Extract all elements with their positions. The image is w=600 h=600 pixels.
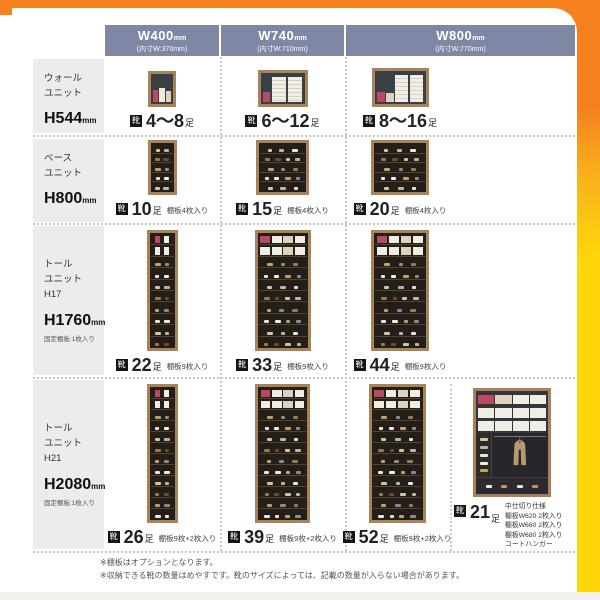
- art-shape: [375, 314, 425, 325]
- capacity-row: 靴 4〜8 足: [130, 112, 194, 130]
- art-shape: [294, 438, 298, 441]
- art-shape: [285, 343, 291, 346]
- art-shape: [401, 471, 405, 474]
- art-shape: [260, 182, 305, 191]
- row-label-wall-unit: ウォール ユニット H544mm: [33, 59, 104, 133]
- art-shape: [155, 158, 160, 161]
- art-shape: [264, 515, 270, 518]
- art-shape: [259, 476, 306, 487]
- unit-name-line: ユニット: [44, 87, 104, 102]
- art-shape: [155, 460, 159, 463]
- art-shape: [260, 144, 305, 154]
- capacity-row: 靴 33 足 棚板9枚入り: [236, 356, 329, 374]
- cell-tall17-w740: 靴 33 足 棚板9枚入り: [222, 230, 343, 374]
- art-shape: [164, 343, 169, 346]
- art-shape: [478, 408, 494, 418]
- art-shape: [164, 493, 169, 496]
- art-shape: [480, 438, 488, 441]
- art-shape: [281, 168, 285, 171]
- art-shape: [283, 247, 293, 255]
- frame-bottom-stripe: [0, 592, 600, 600]
- shoe-count-unit: 足: [391, 204, 400, 217]
- shoe-count: 26: [124, 528, 144, 546]
- locker-spec-notes: 中仕切り仕様 棚板W620 2枚入り 棚板W660 2枚入り 棚板W680 2枚…: [505, 502, 562, 550]
- art-shape: [373, 388, 422, 399]
- art-shape: [410, 149, 416, 152]
- art-shape: [396, 482, 400, 485]
- art-shape: [151, 476, 174, 487]
- art-shape: [391, 177, 396, 180]
- header-width-unit: mm: [174, 35, 186, 42]
- art-shape: [280, 187, 286, 190]
- art-shape: [264, 449, 270, 452]
- art-shape: [375, 182, 425, 191]
- art-shape: [155, 504, 160, 507]
- art-shape: [274, 275, 279, 278]
- art-shape: [165, 168, 169, 171]
- art-shape: [151, 337, 174, 347]
- art-shape: [259, 487, 306, 498]
- art-shape: [165, 482, 169, 485]
- row-label-base-unit: ベース ユニット H800mm: [33, 139, 104, 222]
- art-shape: [373, 476, 422, 487]
- art-shape: [391, 343, 396, 346]
- art-shape: [164, 460, 169, 463]
- art-shape: [264, 297, 270, 300]
- art-shape: [517, 485, 523, 488]
- art-shape: [155, 449, 161, 452]
- shoe-count-unit: 足: [391, 360, 400, 373]
- unit-name-line: トール: [44, 258, 104, 273]
- art-shape: [152, 144, 173, 154]
- height-unit: mm: [91, 318, 105, 327]
- art-shape: [283, 236, 293, 244]
- shoe-badge: 靴: [245, 115, 257, 127]
- art-shape: [283, 390, 292, 397]
- art-shape: [264, 275, 268, 278]
- art-shape: [151, 432, 174, 443]
- coat-icon: [503, 437, 537, 468]
- cell-tall21-w740: 靴 39 足 棚板9枚+2枚入り: [222, 384, 343, 546]
- shoe-count: 44: [370, 356, 390, 374]
- cabinet-illustration: [148, 140, 177, 195]
- row-divider: [33, 551, 575, 553]
- art-shape: [260, 173, 305, 183]
- art-shape: [381, 460, 385, 463]
- art-shape: [381, 275, 385, 278]
- art-shape: [384, 149, 388, 152]
- unit-name-line: H21: [44, 452, 104, 467]
- shoe-count: 15: [252, 200, 272, 218]
- art-shape: [286, 320, 290, 323]
- art-shape: [413, 236, 423, 244]
- art-shape: [259, 432, 306, 443]
- art-shape: [260, 247, 270, 255]
- art-shape: [495, 408, 511, 418]
- unit-name: トール ユニット H17: [44, 258, 104, 302]
- footnote-shelf-option: ※棚板はオプションとなります。: [100, 557, 218, 568]
- art-shape: [259, 410, 306, 421]
- art-shape: [480, 462, 488, 465]
- art-shape: [495, 395, 511, 405]
- art-shape: [259, 509, 306, 519]
- art-shape: [151, 234, 174, 245]
- unit-name-line: ベース: [44, 152, 104, 167]
- art-shape: [164, 438, 170, 441]
- art-shape: [375, 325, 425, 336]
- art-shape: [399, 449, 404, 452]
- art-shape: [267, 263, 273, 266]
- art-shape: [285, 297, 290, 300]
- art-shape: [151, 509, 174, 519]
- art-shape: [263, 92, 270, 102]
- art-shape: [280, 286, 286, 289]
- shoe-count-unit: 足: [491, 512, 500, 525]
- art-shape: [375, 154, 425, 164]
- art-shape: [513, 408, 529, 418]
- art-shape: [296, 471, 301, 474]
- shoe-badge: 靴: [354, 203, 366, 215]
- capacity-row: 靴 8〜16 足: [363, 112, 437, 130]
- shoe-count-unit: 足: [311, 116, 320, 129]
- art-shape: [373, 432, 422, 443]
- art-shape: [398, 390, 408, 397]
- art-shape: [397, 309, 402, 312]
- art-shape: [295, 247, 305, 255]
- art-shape: [259, 443, 306, 454]
- art-shape: [260, 154, 305, 164]
- cabinet-illustration: [255, 384, 310, 523]
- art-shape: [378, 449, 384, 452]
- art-shape: [381, 343, 385, 346]
- art-shape: [530, 408, 546, 418]
- shelf-note: 棚板9枚入り: [405, 361, 447, 372]
- art-shape: [375, 291, 425, 302]
- header-w740: W740mm (内寸W:710mm): [221, 25, 344, 56]
- art-shape: [407, 460, 413, 463]
- art-shape: [398, 286, 404, 289]
- art-shape: [285, 449, 290, 452]
- art-shape: [259, 325, 307, 336]
- shoe-count-unit: 足: [185, 116, 194, 129]
- art-shape: [151, 465, 174, 476]
- art-shape: [285, 515, 290, 518]
- row-label-tall-unit-h17: トール ユニット H17 H1760mm 固定棚板:1枚入り: [33, 226, 104, 375]
- height-unit: mm: [91, 482, 105, 491]
- art-shape: [375, 144, 425, 154]
- art-shape: [394, 460, 399, 463]
- art-shape: [480, 446, 488, 449]
- art-shape: [274, 177, 279, 180]
- shoe-count: 21: [470, 503, 490, 521]
- art-shape: [410, 390, 420, 397]
- art-shape: [402, 297, 407, 300]
- art-shape: [409, 504, 413, 507]
- art-shape: [408, 482, 413, 485]
- fixed-shelf-note: 固定棚板:1枚入り: [44, 497, 104, 507]
- art-shape: [259, 234, 307, 245]
- art-shape: [280, 504, 286, 507]
- art-shape: [476, 477, 548, 494]
- art-shape: [164, 427, 169, 430]
- height-value: H2080: [44, 476, 91, 493]
- art-shape: [151, 280, 174, 291]
- cabinet-illustration: [371, 230, 429, 351]
- capacity-row: 靴 44 足 棚板9枚入り: [354, 356, 447, 374]
- cell-tall21-locker: 靴 21 足 中仕切り仕様 棚板W620 2枚入り 棚板W660 2枚入り 棚板…: [454, 384, 570, 550]
- capacity-row: 靴 21 足 中仕切り仕様 棚板W620 2枚入り 棚板W660 2枚入り 棚板…: [454, 502, 570, 550]
- art-shape: [400, 493, 406, 496]
- art-shape: [260, 163, 305, 173]
- shoe-count: 39: [244, 528, 264, 546]
- capacity-row: 靴 10 足 棚板4枚入り: [116, 200, 209, 218]
- art-shape: [373, 487, 422, 498]
- art-shape: [151, 302, 174, 313]
- art-shape: [164, 236, 169, 244]
- art-shape: [492, 433, 548, 477]
- art-shape: [384, 263, 390, 266]
- art-shape: [384, 286, 389, 289]
- art-shape: [404, 158, 408, 161]
- art-shape: [296, 177, 300, 180]
- art-shape: [413, 297, 419, 300]
- art-shape: [275, 320, 281, 323]
- art-shape: [381, 438, 386, 441]
- header-width: W740: [258, 28, 294, 43]
- art-shape: [274, 493, 279, 496]
- art-shape: [381, 297, 387, 300]
- locker-spec-line: コートハンガー: [505, 540, 562, 550]
- art-shape: [292, 149, 298, 152]
- art-shape: [292, 460, 298, 463]
- art-shape: [389, 247, 399, 255]
- art-shape: [403, 343, 409, 346]
- height-value: H544: [44, 110, 82, 127]
- art-shape: [375, 173, 425, 183]
- art-shape: [295, 236, 305, 244]
- art-shape: [259, 245, 307, 256]
- cabinet-illustration: [255, 230, 311, 351]
- header-w800: W800mm (内寸W:770mm): [346, 25, 575, 56]
- cabinet-illustration: [371, 140, 429, 195]
- shoe-badge: 靴: [236, 203, 248, 215]
- shoe-badge: 靴: [116, 203, 128, 215]
- art-shape: [476, 391, 548, 433]
- art-shape: [381, 158, 386, 161]
- art-shape: [377, 236, 387, 244]
- shoe-count-unit: 足: [265, 532, 274, 545]
- art-shape: [259, 399, 306, 410]
- art-shape: [390, 515, 394, 518]
- art-shape: [151, 443, 174, 454]
- art-shape: [265, 493, 269, 496]
- art-shape: [165, 332, 169, 335]
- art-shape: [384, 309, 388, 312]
- art-shape: [164, 286, 170, 289]
- shoe-count-unit: 足: [153, 360, 162, 373]
- capacity-row: 靴 39 足 棚板9枚+2枚入り: [228, 528, 337, 546]
- art-shape: [280, 438, 286, 441]
- art-shape: [274, 427, 279, 430]
- art-shape: [259, 280, 307, 291]
- art-shape: [286, 471, 290, 474]
- art-shape: [395, 504, 401, 507]
- shoe-count-unit: 足: [153, 204, 162, 217]
- unit-height: H544mm: [44, 110, 104, 128]
- art-shape: [267, 460, 271, 463]
- art-shape: [404, 320, 408, 323]
- art-shape: [155, 263, 161, 266]
- cell-tall17-w800: 靴 44 足 棚板9枚入り: [347, 230, 453, 374]
- art-shape: [378, 471, 383, 474]
- art-shape: [155, 515, 161, 518]
- art-shape: [375, 280, 425, 291]
- art-shape: [374, 401, 384, 408]
- art-shape: [477, 419, 547, 432]
- art-shape: [410, 449, 416, 452]
- art-shape: [155, 390, 160, 397]
- art-shape: [261, 390, 270, 397]
- shelf-note: 棚板4枚入り: [405, 205, 447, 216]
- art-shape: [151, 257, 174, 268]
- art-shape: [375, 257, 425, 268]
- art-shape: [381, 177, 385, 180]
- art-shape: [268, 149, 272, 152]
- shelf-note: 棚板4枚入り: [287, 205, 329, 216]
- art-shape: [414, 320, 419, 323]
- cell-tall17-w400: 靴 22 足 棚板9枚入り: [106, 230, 218, 374]
- art-shape: [295, 449, 301, 452]
- header-inner-width: (内寸W:710mm): [257, 46, 307, 54]
- art-shape: [267, 309, 271, 312]
- art-shape: [373, 410, 422, 421]
- capacity-row: 靴 26 足 棚板9枚+2枚入り: [108, 528, 217, 546]
- art-shape: [260, 236, 270, 244]
- shoe-count-unit: 足: [145, 532, 154, 545]
- unit-height: H800mm: [44, 190, 104, 208]
- shoe-count: 8〜16: [379, 112, 427, 130]
- art-shape: [288, 77, 302, 102]
- art-shape: [403, 177, 409, 180]
- art-shape: [155, 438, 160, 441]
- art-shape: [381, 320, 386, 323]
- art-shape: [381, 416, 387, 419]
- art-shape: [164, 247, 169, 255]
- art-shape: [295, 158, 300, 161]
- art-shape: [389, 236, 399, 244]
- art-shape: [530, 395, 546, 405]
- art-shape: [413, 247, 423, 255]
- art-shape: [379, 493, 383, 496]
- art-shape: [281, 263, 285, 266]
- capacity-row: 靴 20 足 棚板4枚入り: [354, 200, 447, 218]
- unit-name-line: ユニット: [44, 273, 104, 288]
- header-width-unit: mm: [472, 35, 484, 42]
- art-shape: [293, 263, 298, 266]
- art-shape: [155, 416, 161, 419]
- art-shape: [410, 401, 420, 408]
- art-shape: [274, 343, 279, 346]
- art-shape: [297, 275, 301, 278]
- header-width-line: W800mm: [436, 27, 484, 45]
- art-shape: [477, 405, 547, 418]
- art-shape: [166, 91, 172, 102]
- unit-name: ウォール ユニット: [44, 72, 104, 101]
- art-shape: [395, 75, 408, 102]
- art-shape: [374, 390, 384, 397]
- art-shape: [393, 297, 397, 300]
- art-shape: [392, 320, 398, 323]
- shoe-badge: 靴: [354, 359, 366, 371]
- art-shape: [375, 302, 425, 313]
- art-shape: [151, 487, 174, 498]
- capacity-row: 靴 52 足 棚板9枚+2枚入り: [343, 528, 452, 546]
- art-shape: [378, 515, 384, 518]
- art-shape: [390, 449, 394, 452]
- art-shape: [259, 498, 306, 509]
- art-shape: [513, 421, 529, 431]
- art-shape: [151, 268, 174, 279]
- art-shape: [513, 395, 529, 405]
- art-shape: [412, 427, 416, 430]
- art-shape: [411, 471, 416, 474]
- art-shape: [295, 390, 304, 397]
- art-shape: [410, 75, 423, 102]
- art-shape: [155, 275, 159, 278]
- cabinet-illustration: [147, 230, 178, 351]
- shoe-count: 33: [252, 356, 272, 374]
- art-shape: [401, 236, 411, 244]
- art-shape: [495, 421, 511, 431]
- spec-sheet: W400mm (内寸W:370mm) W740mm (内寸W:710mm) W8…: [0, 0, 600, 600]
- art-shape: [155, 332, 161, 335]
- cabinet-illustration: [372, 68, 429, 107]
- art-shape: [163, 158, 169, 161]
- art-shape: [530, 421, 546, 431]
- art-shape: [286, 158, 290, 161]
- art-shape: [151, 325, 174, 336]
- art-shape: [151, 498, 174, 509]
- art-shape: [285, 177, 291, 180]
- art-shape: [155, 482, 161, 485]
- shelf-note: 棚板9枚+2枚入り: [159, 533, 217, 544]
- art-shape: [410, 515, 416, 518]
- art-shape: [259, 465, 306, 476]
- header-width-line: W400mm: [138, 27, 186, 45]
- shoe-count: 20: [370, 200, 390, 218]
- art-shape: [259, 291, 307, 302]
- art-shape: [156, 149, 160, 152]
- art-shape: [259, 268, 307, 279]
- art-shape: [410, 309, 416, 312]
- unit-name: トール ユニット H21: [44, 422, 104, 466]
- header-width: W400: [138, 28, 174, 43]
- locker-spec-line: 棚板W660 2枚入り: [505, 521, 562, 531]
- art-shape: [409, 438, 413, 441]
- art-shape: [152, 163, 173, 173]
- height-unit: mm: [82, 196, 96, 205]
- art-shape: [155, 297, 161, 300]
- art-shape: [386, 390, 396, 397]
- art-shape: [275, 515, 279, 518]
- art-shape: [155, 493, 159, 496]
- shoe-count: 4〜8: [146, 112, 184, 130]
- capacity-row: 靴 6〜12 足: [245, 112, 319, 130]
- shoe-count: 22: [132, 356, 152, 374]
- art-shape: [152, 182, 173, 191]
- art-shape: [478, 421, 494, 431]
- header-width: W800: [436, 28, 472, 43]
